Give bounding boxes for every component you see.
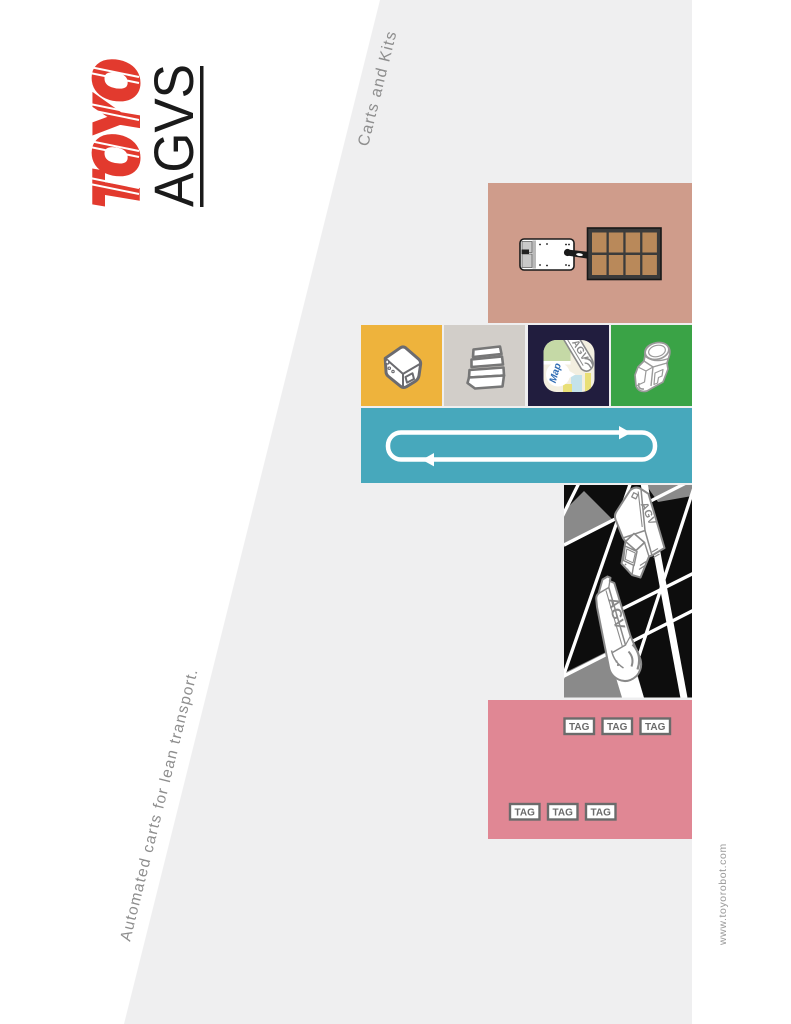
svg-text:TAG: TAG bbox=[552, 808, 573, 819]
svg-text:TAG: TAG bbox=[607, 722, 628, 733]
svg-text:TAG: TAG bbox=[514, 808, 535, 819]
svg-text:TAG: TAG bbox=[645, 722, 666, 733]
svg-text:TAG: TAG bbox=[569, 722, 590, 733]
svg-text:AGVS: AGVS bbox=[142, 64, 205, 207]
svg-text:www.toyorobot.com: www.toyorobot.com bbox=[717, 843, 729, 946]
svg-text:TAG: TAG bbox=[590, 808, 611, 819]
